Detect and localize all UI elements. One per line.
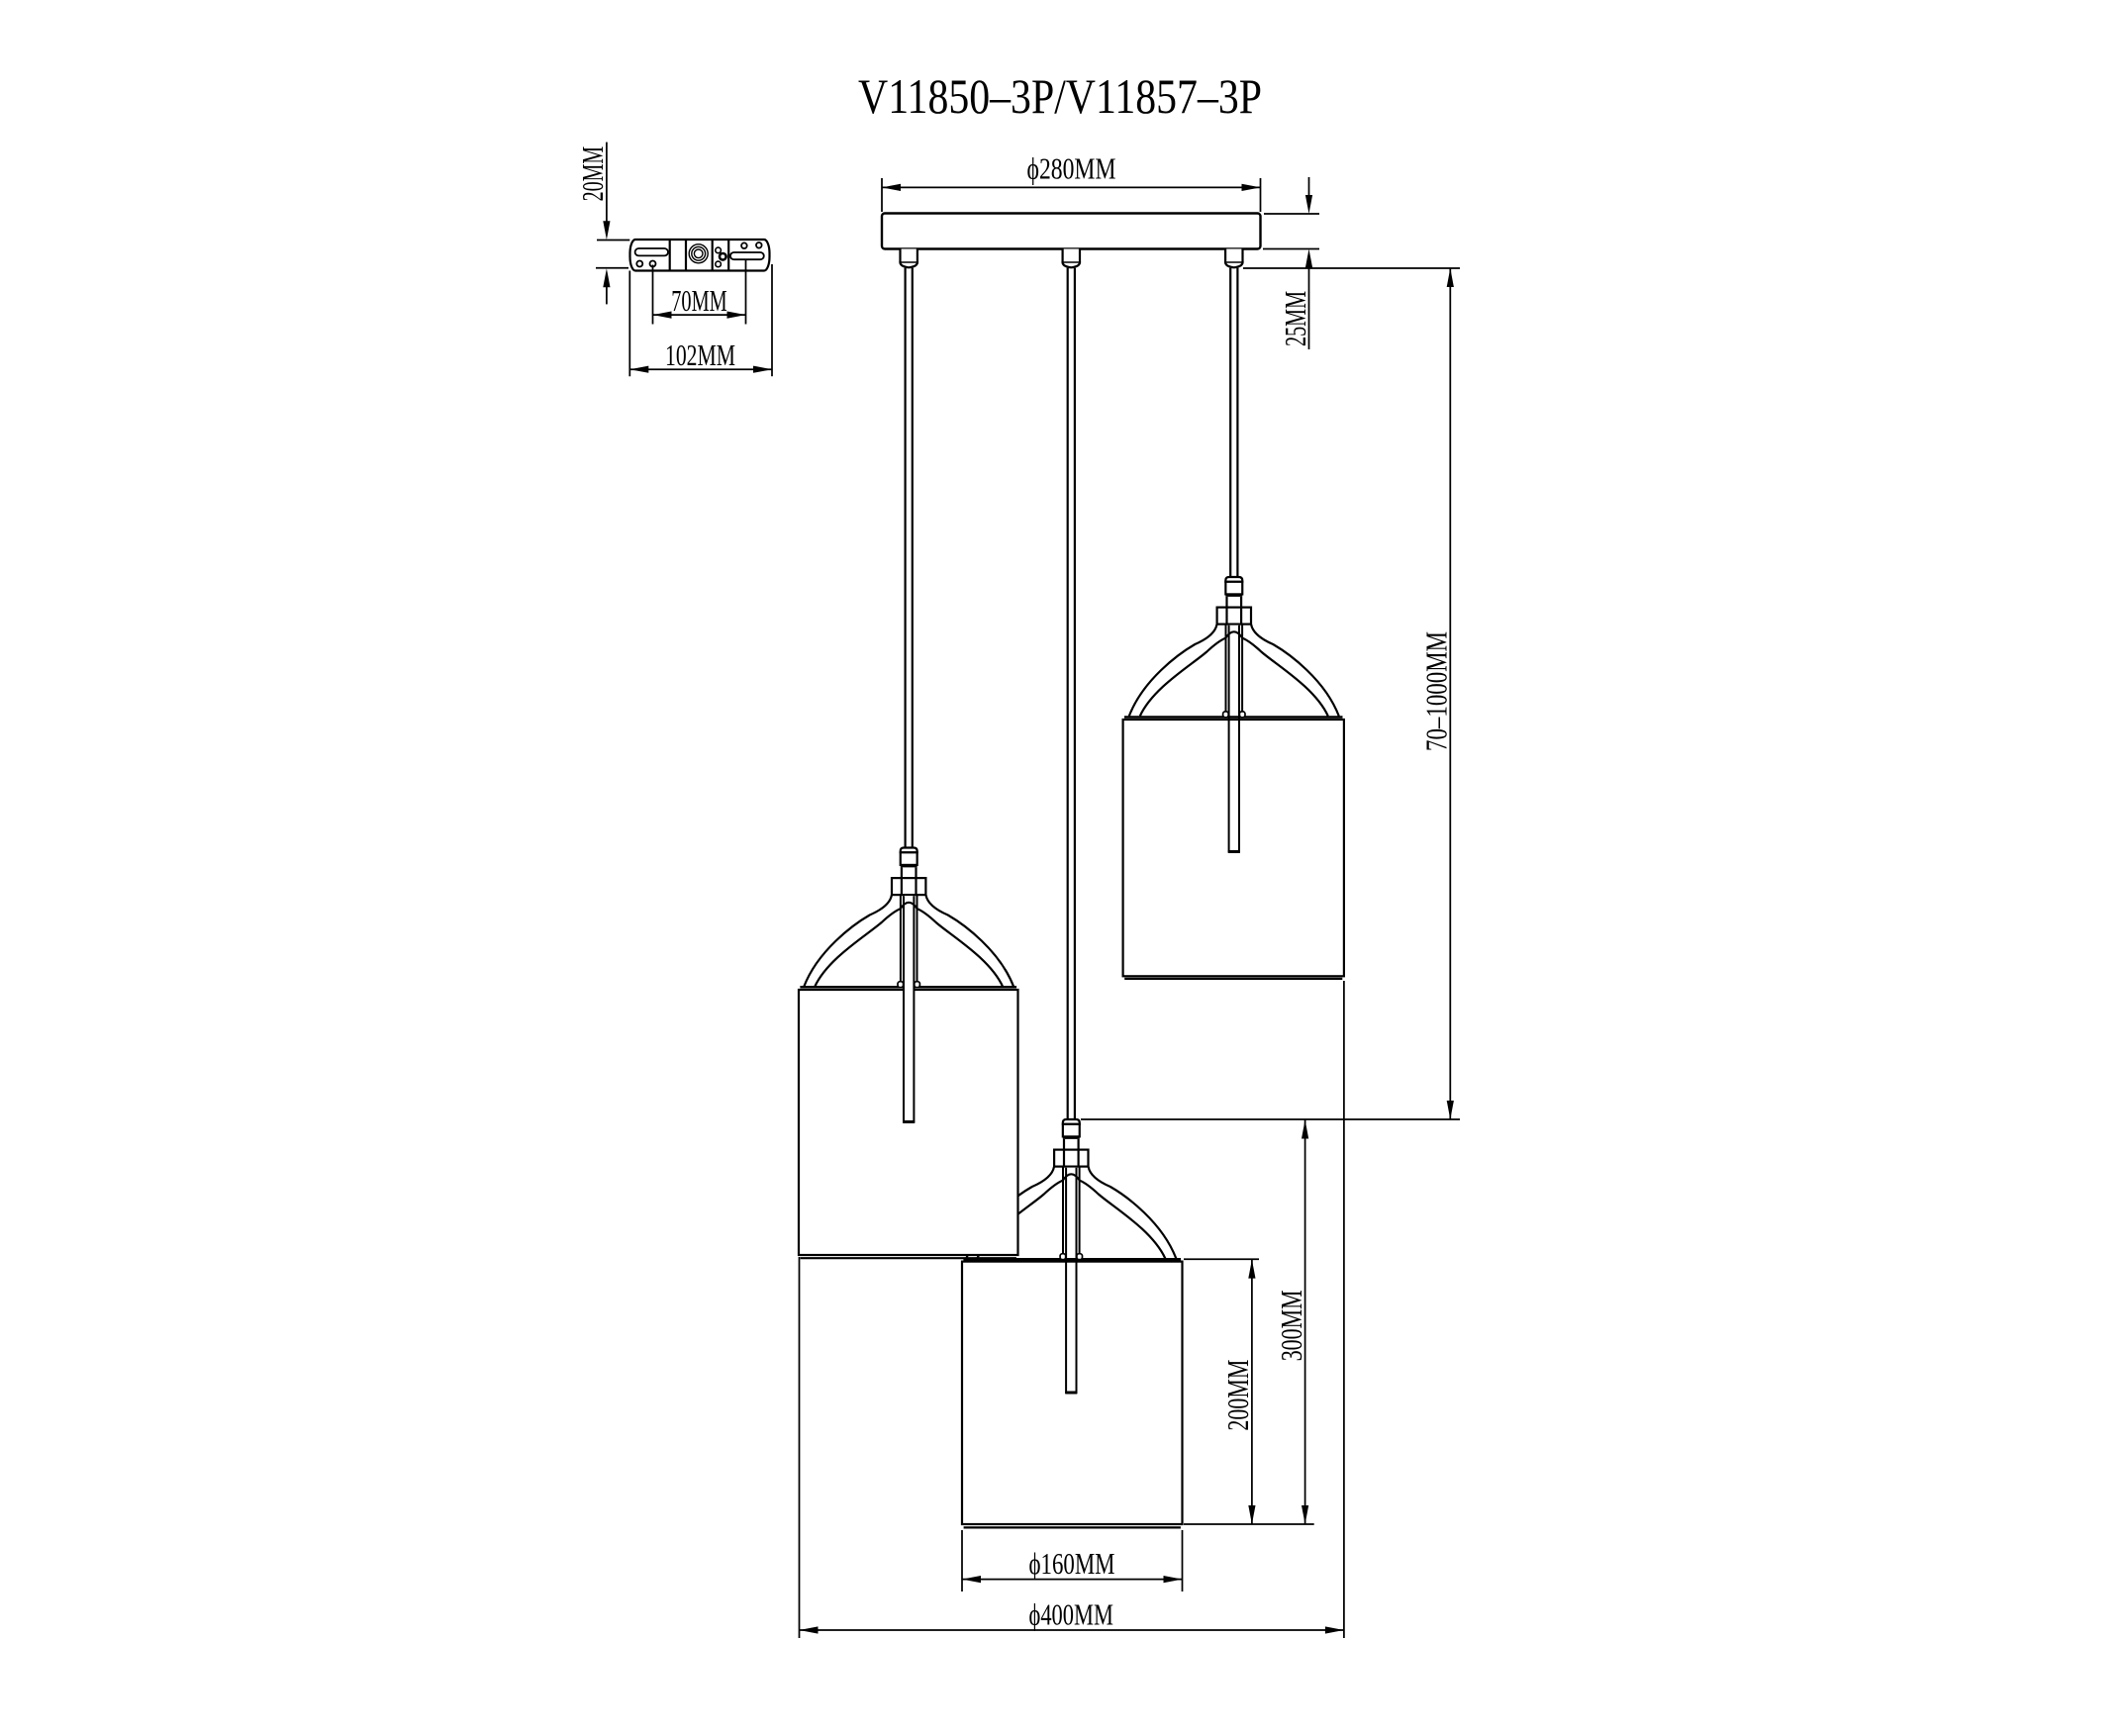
- svg-text:ϕ160MM: ϕ160MM: [1029, 1546, 1115, 1581]
- svg-text:102MM: 102MM: [665, 338, 735, 372]
- svg-text:200MM: 200MM: [1220, 1360, 1255, 1431]
- svg-text:300MM: 300MM: [1274, 1290, 1308, 1361]
- svg-text:V11850–3P/V11857–3P: V11850–3P/V11857–3P: [858, 68, 1262, 124]
- svg-text:70–1000MM: 70–1000MM: [1418, 631, 1453, 751]
- svg-text:25MM: 25MM: [1278, 291, 1312, 346]
- svg-text:ϕ280MM: ϕ280MM: [1027, 151, 1116, 186]
- svg-text:20MM: 20MM: [575, 146, 610, 202]
- svg-text:70MM: 70MM: [671, 283, 727, 318]
- svg-text:ϕ400MM: ϕ400MM: [1029, 1597, 1113, 1632]
